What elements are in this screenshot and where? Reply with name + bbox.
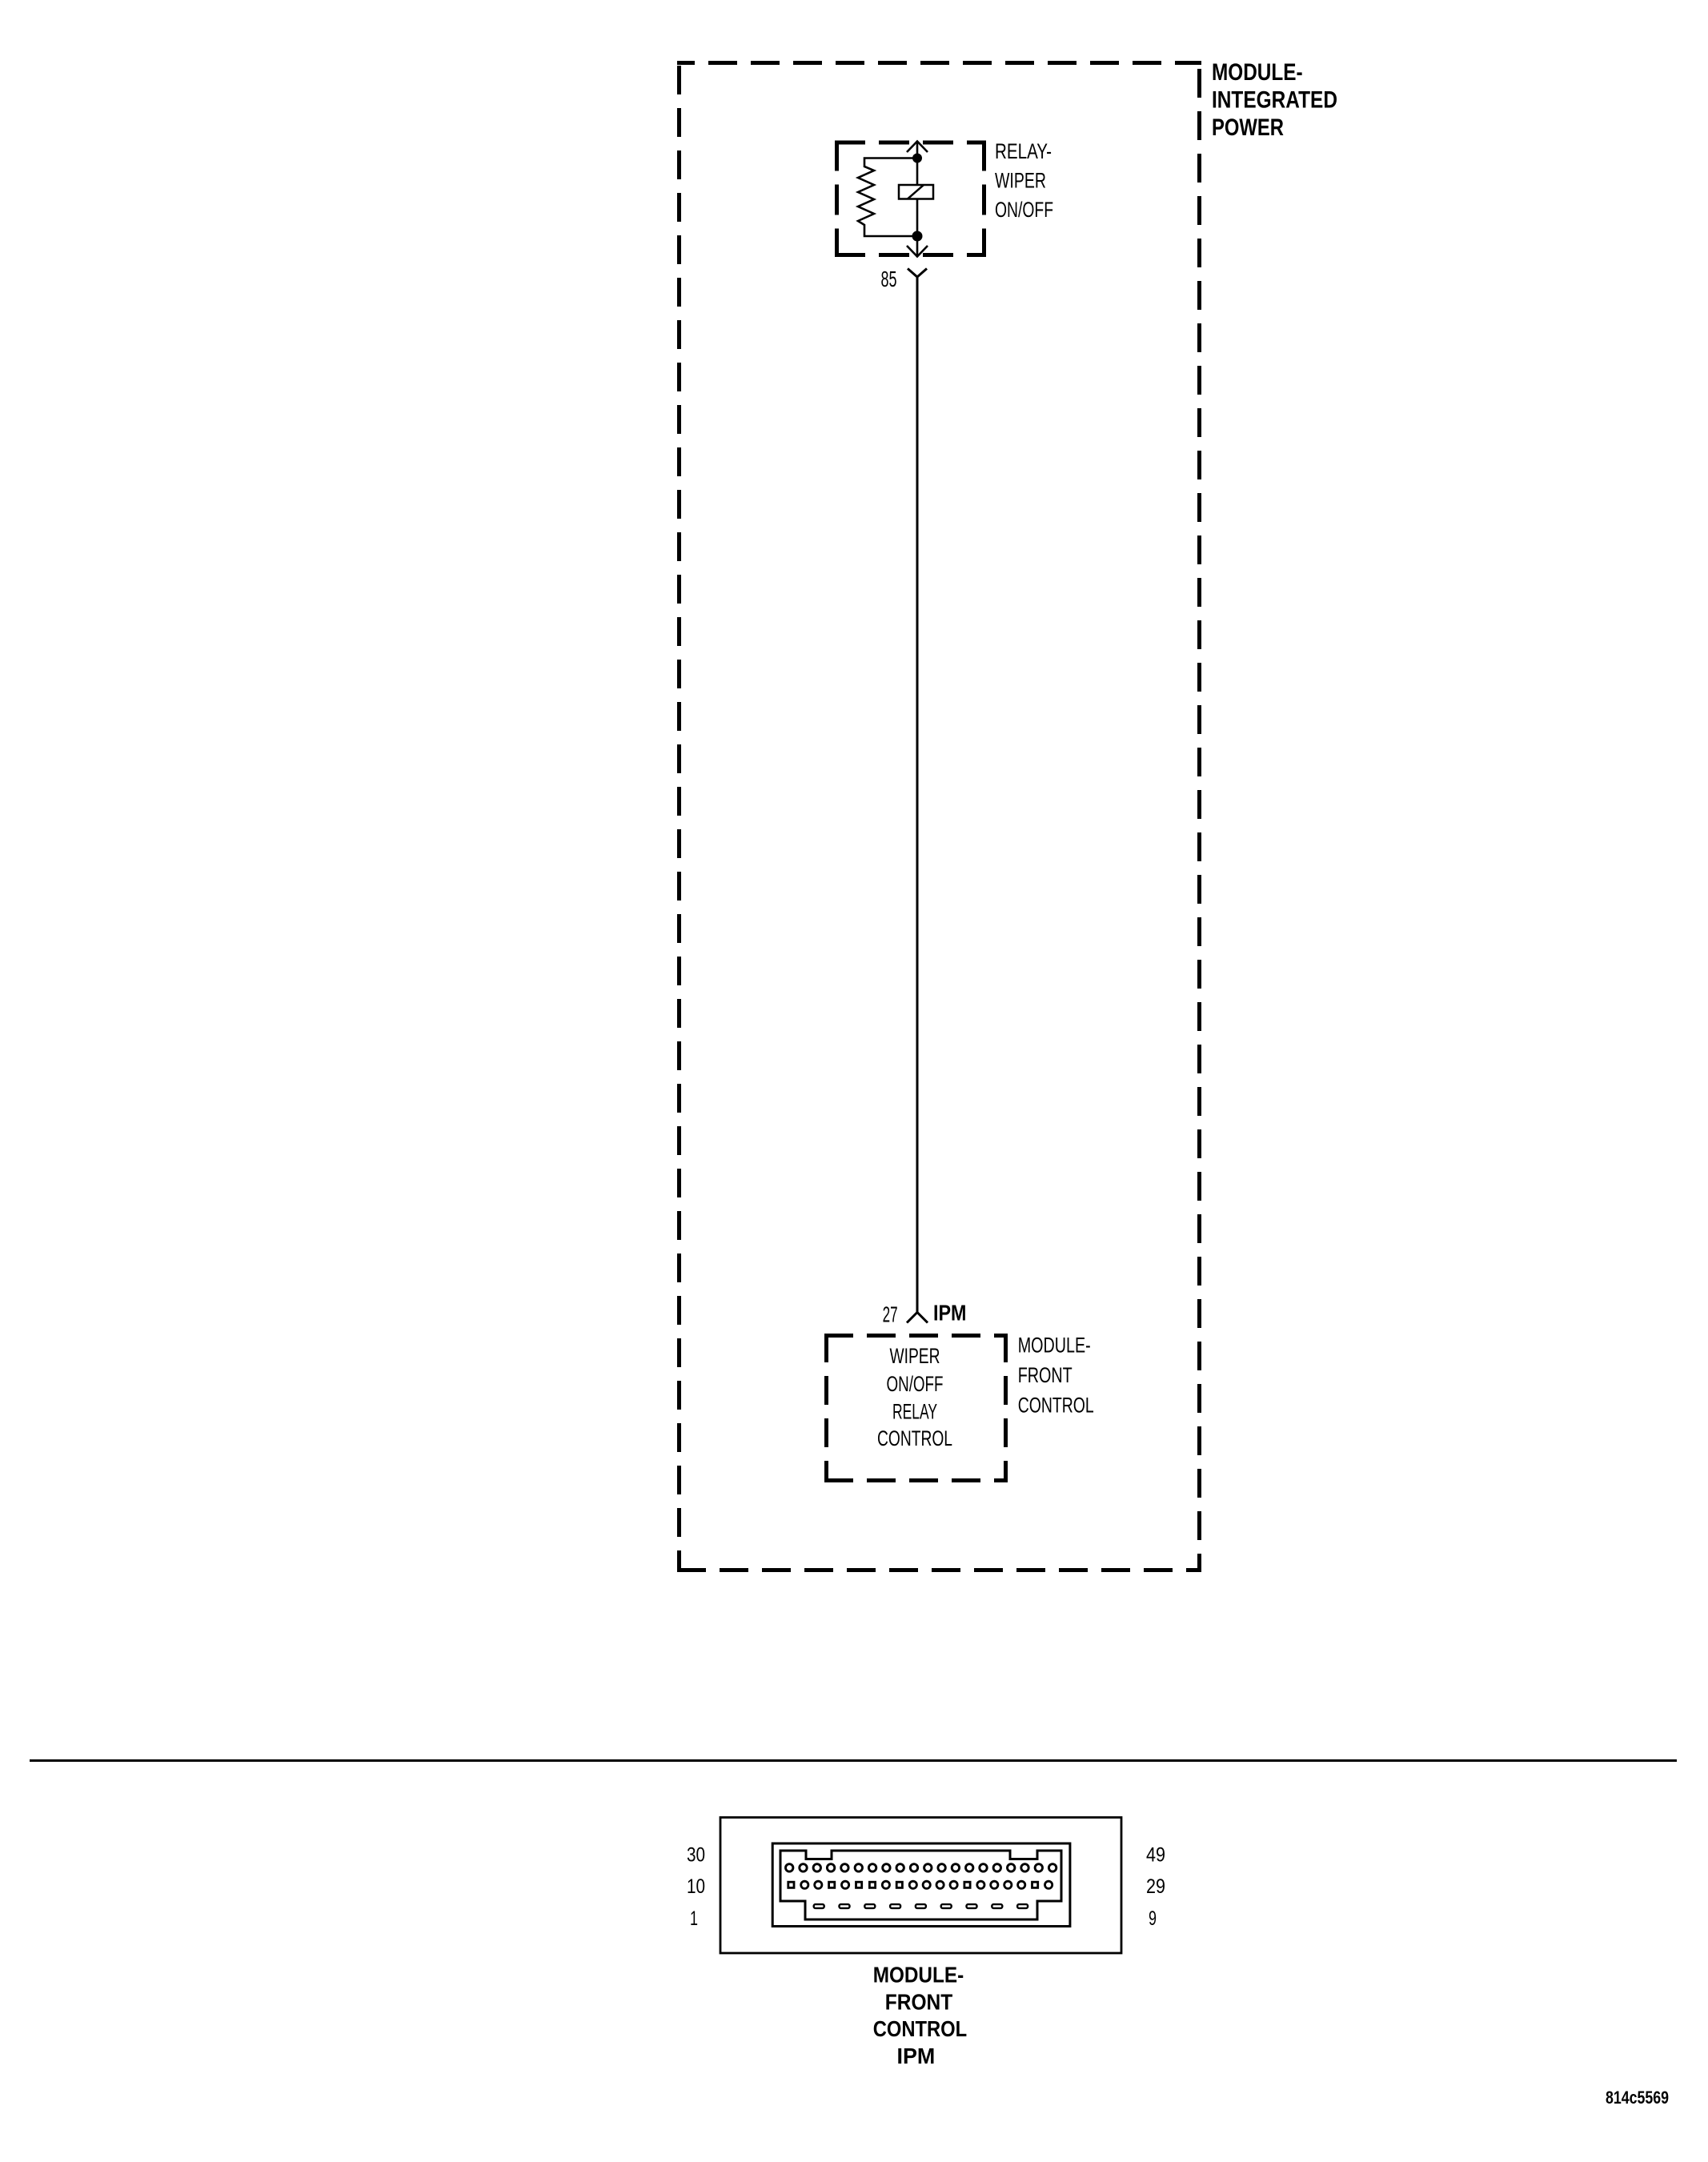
svg-text:814c5569: 814c5569 [1606,2088,1669,2108]
svg-text:85: 85 [881,267,897,291]
svg-text:9: 9 [1149,1907,1157,1930]
svg-text:30: 30 [687,1843,705,1866]
svg-text:CONTROL: CONTROL [877,1426,952,1450]
svg-text:IPM: IPM [897,2044,936,2068]
svg-text:POWER: POWER [1212,114,1284,141]
svg-text:MODULE-: MODULE- [1018,1334,1091,1358]
svg-text:MODULE-: MODULE- [873,1963,964,1988]
svg-text:ON/OFF: ON/OFF [887,1372,944,1396]
svg-text:FRONT: FRONT [885,1989,952,2014]
svg-text:WIPER: WIPER [995,169,1046,193]
svg-text:MODULE-: MODULE- [1212,59,1303,86]
svg-text:29: 29 [1146,1875,1165,1898]
svg-text:RELAY-: RELAY- [995,139,1052,163]
svg-text:49: 49 [1146,1843,1165,1866]
svg-text:RELAY: RELAY [892,1399,937,1423]
svg-text:ON/OFF: ON/OFF [995,198,1053,222]
svg-text:FRONT: FRONT [1018,1363,1073,1387]
svg-text:INTEGRATED: INTEGRATED [1212,87,1337,114]
svg-text:CONTROL: CONTROL [873,2016,968,2041]
svg-text:10: 10 [687,1875,705,1898]
svg-text:IPM: IPM [933,1301,967,1326]
svg-text:27: 27 [883,1302,898,1327]
svg-text:1: 1 [690,1907,698,1930]
svg-text:CONTROL: CONTROL [1018,1393,1094,1417]
svg-text:WIPER: WIPER [890,1344,940,1368]
